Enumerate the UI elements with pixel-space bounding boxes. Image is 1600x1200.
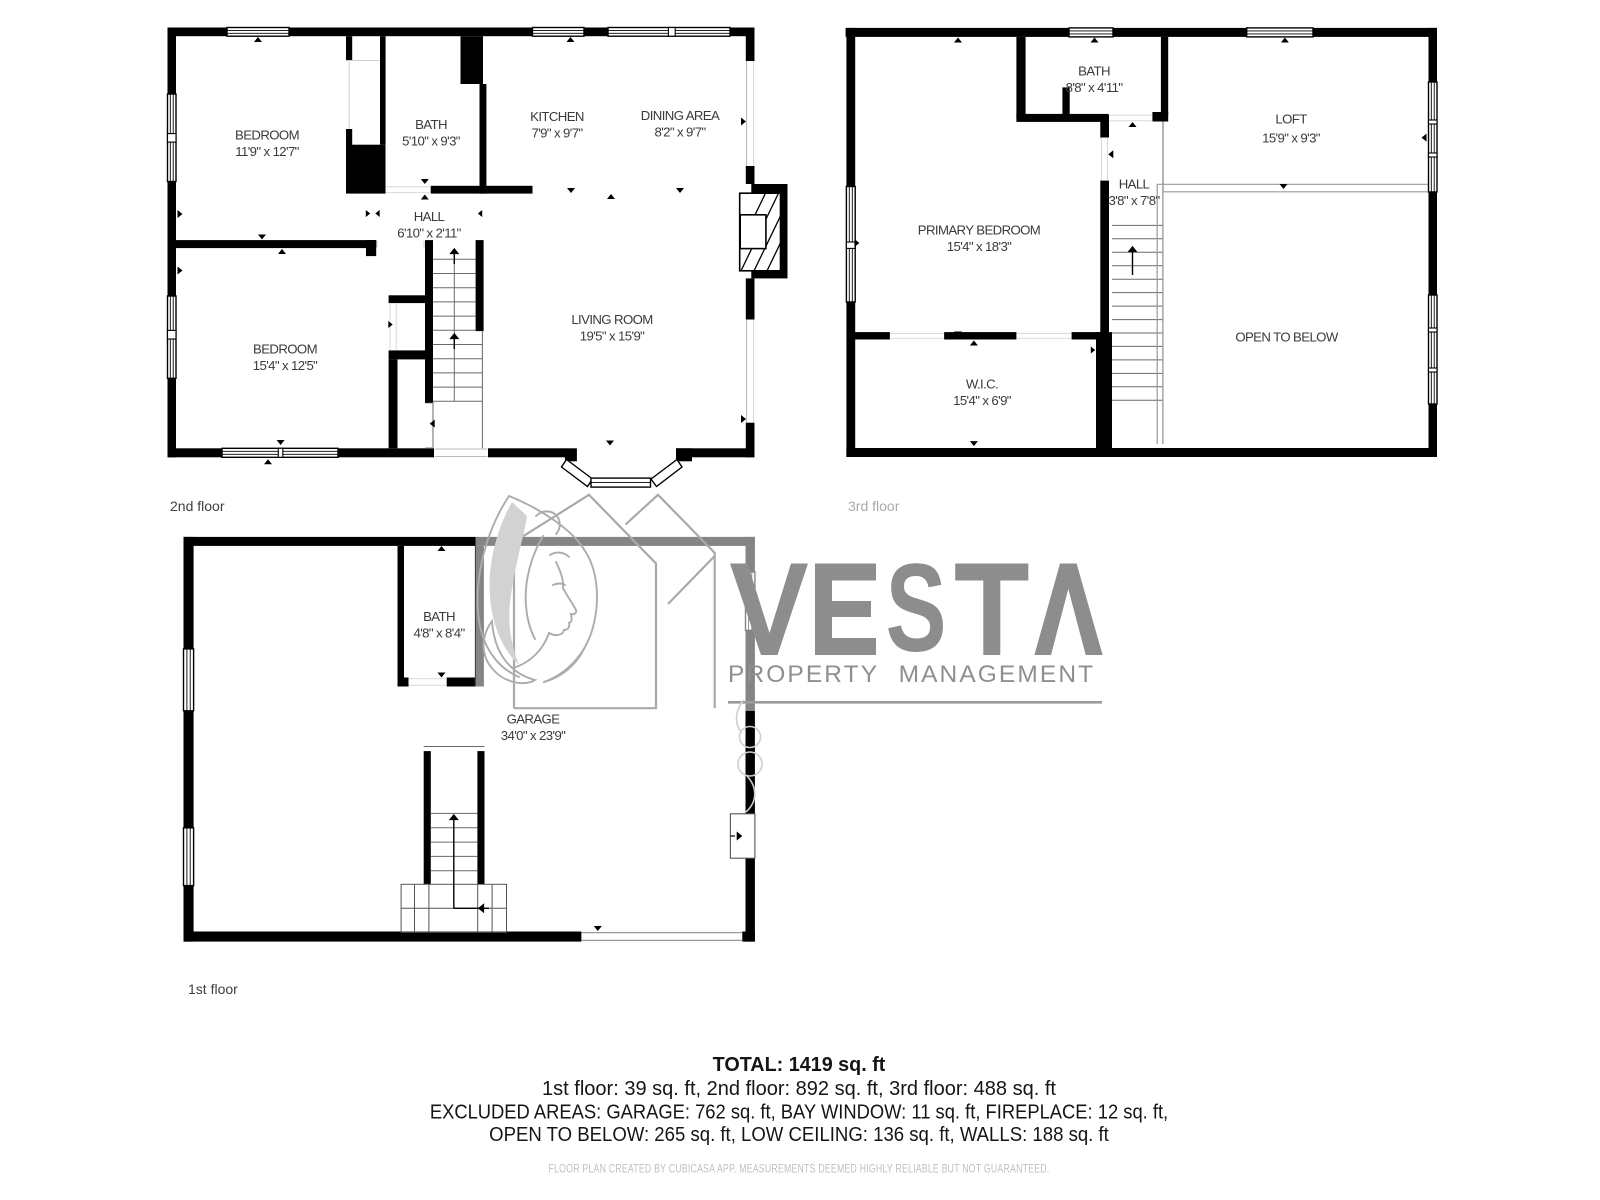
svg-text:15'4" x 18'3": 15'4" x 18'3" bbox=[947, 239, 1012, 254]
svg-text:GARAGE: GARAGE bbox=[507, 712, 561, 727]
svg-text:34'0" x 23'9": 34'0" x 23'9" bbox=[501, 728, 566, 743]
svg-text:4'8" x 8'4": 4'8" x 8'4" bbox=[413, 626, 465, 641]
svg-text:1st floor: 39 sq. ft, 2nd floo: 1st floor: 39 sq. ft, 2nd floor: 892 sq.… bbox=[542, 1078, 1056, 1100]
svg-text:15'4" x 12'5": 15'4" x 12'5" bbox=[253, 358, 318, 373]
svg-text:3rd floor: 3rd floor bbox=[848, 498, 900, 514]
svg-text:7'9" x 9'7": 7'9" x 9'7" bbox=[531, 126, 583, 141]
svg-text:BATH: BATH bbox=[1078, 64, 1110, 79]
svg-text:OPEN TO BELOW: OPEN TO BELOW bbox=[1235, 330, 1339, 345]
svg-text:FLOOR PLAN CREATED BY CUBICASA: FLOOR PLAN CREATED BY CUBICASA APP. MEAS… bbox=[549, 1163, 1050, 1175]
svg-text:S: S bbox=[886, 539, 947, 678]
svg-text:DINING AREA: DINING AREA bbox=[641, 108, 720, 123]
svg-text:2nd floor: 2nd floor bbox=[170, 498, 225, 514]
svg-text:KITCHEN: KITCHEN bbox=[530, 109, 584, 124]
svg-text:HALL: HALL bbox=[414, 209, 445, 224]
svg-text:11'9" x 12'7": 11'9" x 12'7" bbox=[235, 144, 299, 159]
svg-text:EXCLUDED AREAS: GARAGE: 762 sq: EXCLUDED AREAS: GARAGE: 762 sq. ft, BAY … bbox=[430, 1101, 1168, 1124]
svg-text:HALL: HALL bbox=[1119, 177, 1150, 192]
svg-text:15'4" x 6'9": 15'4" x 6'9" bbox=[953, 393, 1012, 408]
svg-text:TOTAL: 1419 sq. ft: TOTAL: 1419 sq. ft bbox=[713, 1054, 886, 1076]
svg-text:PRIMARY BEDROOM: PRIMARY BEDROOM bbox=[918, 223, 1040, 238]
svg-text:1st floor: 1st floor bbox=[188, 981, 238, 997]
svg-text:15'9" x 9'3": 15'9" x 9'3" bbox=[1262, 131, 1321, 146]
svg-text:5'10" x 9'3": 5'10" x 9'3" bbox=[402, 134, 461, 149]
svg-text:BATH: BATH bbox=[415, 117, 447, 132]
svg-text:8'2" x 9'7": 8'2" x 9'7" bbox=[654, 125, 706, 140]
svg-text:BATH: BATH bbox=[423, 609, 455, 624]
svg-text:3'8" x 7'8": 3'8" x 7'8" bbox=[1108, 193, 1160, 208]
svg-text:OPEN TO BELOW: 265 sq. ft, LOW: OPEN TO BELOW: 265 sq. ft, LOW CEILING: … bbox=[489, 1123, 1109, 1146]
svg-text:BEDROOM: BEDROOM bbox=[253, 342, 317, 357]
svg-text:W.I.C.: W.I.C. bbox=[966, 376, 998, 391]
svg-text:8'8" x 4'11": 8'8" x 4'11" bbox=[1066, 80, 1124, 95]
svg-text:6'10" x 2'11": 6'10" x 2'11" bbox=[397, 226, 461, 241]
svg-text:BEDROOM: BEDROOM bbox=[235, 128, 299, 143]
svg-text:19'5" x 15'9": 19'5" x 15'9" bbox=[580, 329, 645, 344]
svg-text:PROPERTY MANAGEMENT: PROPERTY MANAGEMENT bbox=[728, 661, 1095, 688]
svg-text:LIVING ROOM: LIVING ROOM bbox=[571, 312, 652, 327]
svg-text:LOFT: LOFT bbox=[1275, 112, 1307, 127]
